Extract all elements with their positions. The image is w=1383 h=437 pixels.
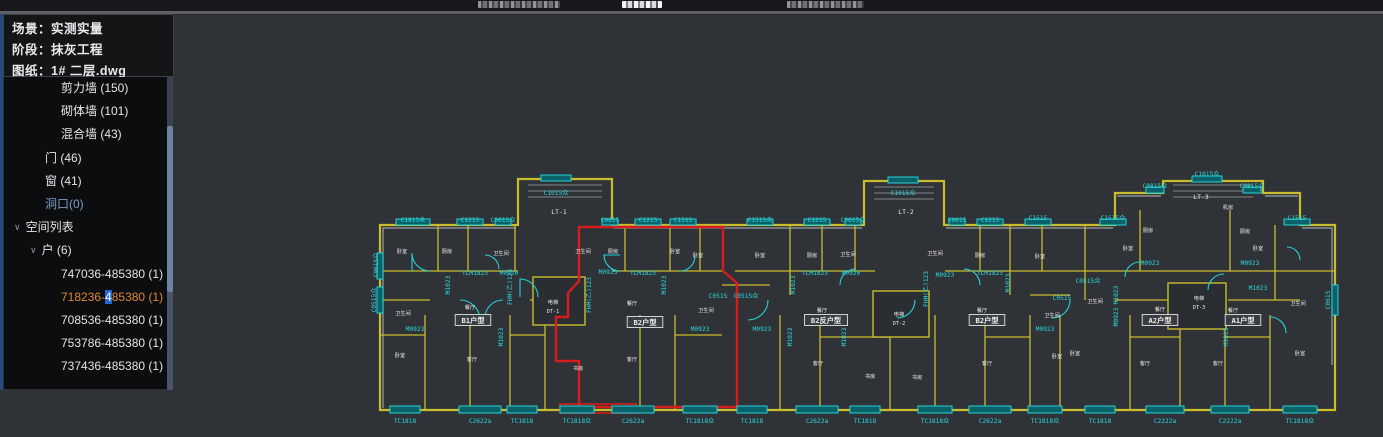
stair-label: LT-1 [551,208,567,216]
window-label: TC1818 [741,418,764,425]
door-label: M0923 [1036,326,1055,333]
door-label: C0515 [709,293,728,300]
room-label: 卫生间 [698,306,714,314]
tree-item[interactable]: 门 (46) [4,147,173,170]
window-TC1818众 [683,406,717,413]
room-label: 卫生间 [840,250,856,258]
elevator-label: 电梯 [894,310,904,318]
window-TC1818 [390,406,420,413]
floorplan-canvas[interactable]: C1815众C1215C0615众C1015众C0615C1215C1515C1… [370,165,1345,435]
elevator-label: DT-1 [547,309,560,315]
window-label: TC1818众 [1031,418,1060,425]
door-label: M0923 [691,326,710,333]
context-line-2: 阶段：抹灰工程 [12,39,103,58]
window-label: TC1818众 [1286,418,1315,425]
door-label-vertical: M1023 [661,275,668,294]
window-C2622a [612,406,654,413]
door-label: M0923 [936,272,955,279]
room-label: 卧室 [395,351,405,359]
elevator-label: 电梯 [1194,294,1204,302]
unit-type-label: B2反户型 [811,316,841,325]
tree-item[interactable]: 753786-485380 (1) [4,332,173,355]
room-label: 卫生间 [575,247,591,255]
window-label: C1015众 [1195,171,1220,178]
elevator-label: 电梯 [548,298,558,306]
door-label-vertical: FHM(乙)123 [586,277,593,313]
window-label: TC1818 [1089,418,1112,425]
door-label-vertical: C0515众 [371,288,378,313]
window-label: C1515 [1288,215,1307,222]
top-menu-bar [0,0,1383,11]
window-label: C0815众 [1240,183,1265,190]
room-label: 卫生间 [493,249,509,257]
tree-item[interactable]: 747036-485380 (1) [4,263,173,286]
room-label: 厨房 [807,251,817,259]
door-label-vertical: C0615 [1325,290,1332,309]
window-label: C2622a [806,418,829,425]
door-label: M0923 [753,326,772,333]
window-label: C2622a [469,418,492,425]
window-label: C0815众 [1143,183,1168,190]
top-tab-fragment-3[interactable] [787,1,864,8]
window-TC1818 [1085,406,1115,413]
window-label: C1215 [639,217,658,224]
window-label: TC1818 [854,418,877,425]
top-tab-fragment-1[interactable] [478,1,560,8]
tree-item[interactable]: 剪力墙 (150) [4,77,173,100]
window-TC1818 [737,406,767,413]
window-label: C1215 [461,217,480,224]
tree-scrollbar-track-lower[interactable] [167,292,173,390]
door-label: TLM1823 [462,270,488,277]
door-label: M0923 [1241,260,1260,267]
window-label: TC1818 [394,418,417,425]
room-label: 卧室 [397,247,407,255]
room-label: 卧室 [1123,244,1133,252]
room-label: 卫生间 [1044,311,1060,319]
tree-item[interactable]: 737436-485380 (1) [4,355,173,378]
room-label: 餐厅 [1155,305,1165,313]
window-label: C1015众 [891,190,916,197]
window-label: C1815众 [401,217,426,224]
tree-item[interactable]: ∨空间列表 [4,216,173,239]
window-C2622a [796,406,838,413]
window-C2222a [1211,406,1249,413]
tree-item[interactable]: 混合墙 (43) [4,123,173,146]
room-label: 卧室 [1052,352,1062,360]
room-label: 卫生间 [395,309,411,317]
room-label: 厨房 [975,251,985,259]
door-label-vertical: M1023 [787,327,794,346]
door-label-vertical: M1023 [1005,273,1012,292]
window-TC1818众 [1283,406,1317,413]
door-label: C0515 [1053,295,1072,302]
elevator-label: DT-2 [893,321,906,327]
door-label-vertical: M1023 [1113,285,1120,304]
window-label: C1215 [981,217,1000,224]
door-label-vertical: M1023 [445,275,452,294]
room-label: 卧室 [1035,252,1045,260]
room-label: 餐厅 [817,306,827,314]
room-label: 卫生间 [1290,299,1306,307]
room-label: 厨房 [1143,226,1153,234]
tree-item[interactable]: 708536-485380 (1) [4,309,173,332]
room-label: 书房 [865,372,875,380]
tree-item[interactable]: 窗 (41) [4,170,173,193]
door-label: TLM1823 [630,270,656,277]
window-label: C2222a [1154,418,1177,425]
room-label: 餐厅 [627,299,637,307]
window-label: C2622a [622,418,645,425]
door-label: M0923 [406,326,425,333]
window-C1015众 [888,177,918,183]
chevron-down-icon[interactable]: ∨ [14,222,21,232]
chevron-down-icon[interactable]: ∨ [30,245,37,255]
room-label: 客厅 [627,355,637,363]
unit-type-label: B2户型 [975,316,998,325]
window-label: C1515众 [1101,215,1126,222]
window-label: C1515 [1029,215,1048,222]
room-label: 餐厅 [465,303,475,311]
tree-item[interactable]: 洞口(0) [4,193,173,216]
context-line-1: 场景：实测实量 [12,18,103,37]
tree-item[interactable]: 砌体墙 (101) [4,100,173,123]
room-label: 客厅 [813,359,823,367]
room-label: 客厅 [1140,359,1150,367]
window-label: TC1818众 [686,418,715,425]
room-label: 客厅 [982,359,992,367]
toolbar-divider [0,11,1383,15]
window-label: C2222a [1219,418,1242,425]
door-label-vertical: FHM(乙)123 [507,269,514,305]
window-label: TC1818 [511,418,534,425]
room-label: 客厅 [467,355,477,363]
door-label: M1023 [1249,285,1268,292]
tree-scrollbar-thumb[interactable] [167,126,173,292]
room-label: 客厅 [1213,359,1223,367]
door-label-vertical: M1023 [790,275,797,294]
top-tab-fragment-2[interactable] [622,1,662,8]
window-label: C0615众 [841,217,866,224]
window-label: C1215 [808,217,827,224]
layer-tree-panel: 场景：实测实量阶段：抹灰工程图纸：1# 二层.dwg 剪力墙 (150)砌体墙 … [0,14,174,390]
window-label: C1515众 [748,217,773,224]
door-label: M0920 [842,270,861,277]
room-label: 书房 [912,373,922,381]
elevator-shafts [533,277,1226,337]
window-TC1818 [507,406,537,413]
room-label: 卧室 [1070,349,1080,357]
door-label-vertical: M0923 [1113,307,1120,326]
window-label: C0615 [601,217,620,224]
door-label: TLM1823 [802,270,828,277]
room-label: 卧室 [755,251,765,259]
room-label: 餐厅 [1228,306,1238,314]
room-label: 卧室 [670,247,680,255]
app-window: C1815众C1215C0615众C1015众C0615C1215C1515C1… [0,0,1383,437]
door-label: M0923 [599,269,618,276]
room-label: 卫生间 [1087,297,1103,305]
window-label: C2622a [979,418,1002,425]
window-label: C0615众 [491,217,516,224]
window-TC1818 [850,406,880,413]
window-TC1818众 [1028,406,1062,413]
window-C1015众 [541,175,571,181]
element-tree: 剪力墙 (150)砌体墙 (101)混合墙 (43)门 (46)窗 (41)洞口… [3,77,174,390]
door-label-vertical: FHM(乙)123 [923,271,930,307]
context-header: 场景：实测实量阶段：抹灰工程图纸：1# 二层.dwg [3,14,174,77]
window-TC1818众 [918,406,952,413]
room-label: 厨房 [608,247,618,255]
door-label: TLM1823 [977,270,1003,277]
tree-item-selected[interactable]: 718236-485380 (1) [4,286,173,309]
room-label: 厨房 [442,247,452,255]
unit-type-label: B1户型 [461,316,484,325]
elevator-label: DT-3 [1193,305,1206,311]
window-label: C0615 [948,217,967,224]
door-label: M0923 [1141,260,1160,267]
unit-type-label: A1户型 [1231,316,1254,325]
room-label: 卧室 [1295,349,1305,357]
door-label: C0515众 [1076,278,1101,285]
stair-label: LT-3 [1193,193,1209,201]
window-label: C1015众 [544,190,569,197]
room-label: 厨房 [1240,227,1250,235]
door-label-vertical: C0615众 [373,253,380,278]
tree-item[interactable]: ∨户 (6) [4,239,173,262]
text-selection-highlight: 4 [105,290,112,304]
unit-type-label: A2户型 [1148,316,1171,325]
window-label: TC1818众 [563,418,592,425]
room-label: 餐厅 [977,306,987,314]
door-label-vertical: M1023 [1223,327,1230,346]
stair-label: LT-2 [898,208,914,216]
room-label: 卧室 [693,251,703,259]
window-C2622a [459,406,501,413]
room-label: 机房 [1223,203,1233,211]
window-TC1818众 [560,406,594,413]
room-label: 卫生间 [927,249,943,257]
room-label: 卧室 [1253,244,1263,252]
door-label-vertical: M1023 [841,327,848,346]
window-C2622a [969,406,1011,413]
window-C2222a [1146,406,1184,413]
door-label-vertical: M1023 [498,327,505,346]
window-label: TC1818众 [921,418,950,425]
door-label: C0515众 [734,293,759,300]
room-label: 书房 [573,364,583,372]
unit-type-label: B2户型 [633,318,656,327]
window-label: C1515 [674,217,693,224]
